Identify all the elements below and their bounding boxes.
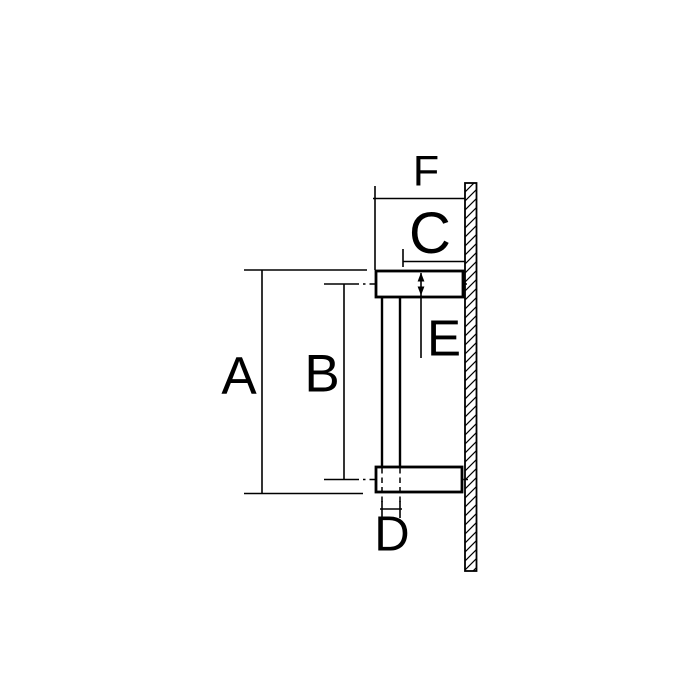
top-standoff — [376, 271, 463, 297]
wall-section-hatched — [465, 183, 477, 571]
handle-bar — [382, 296, 400, 468]
dim-label-c: C — [409, 205, 451, 263]
dim-label-e: E — [427, 313, 461, 364]
dim-label-a: A — [221, 350, 256, 403]
dim-label-b: B — [304, 348, 339, 401]
bottom-standoff — [376, 467, 462, 492]
dim-label-f: F — [413, 151, 439, 194]
technical-drawing-canvas: A B C D E F — [0, 0, 700, 700]
handle-dimension-diagram — [0, 0, 700, 700]
dim-label-d: D — [374, 511, 409, 560]
